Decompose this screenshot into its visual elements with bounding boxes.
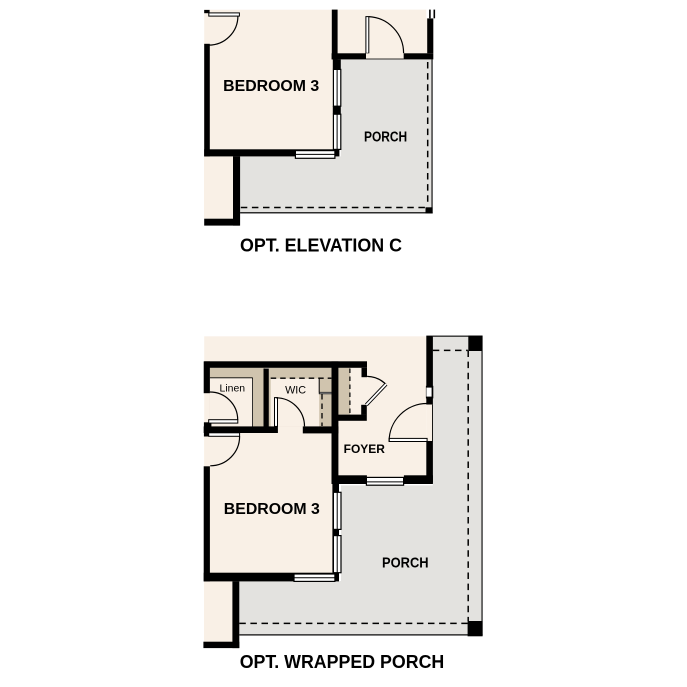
svg-text:PORCH: PORCH	[364, 129, 407, 145]
svg-text:PORCH: PORCH	[382, 554, 429, 571]
svg-text:OPT. ELEVATION C: OPT. ELEVATION C	[240, 236, 402, 256]
svg-text:WIC: WIC	[285, 385, 306, 397]
svg-text:Linen: Linen	[220, 383, 246, 394]
svg-text:FOYER: FOYER	[344, 443, 386, 456]
svg-text:OPT. WRAPPED PORCH: OPT. WRAPPED PORCH	[240, 652, 445, 672]
svg-text:BEDROOM 3: BEDROOM 3	[224, 501, 320, 518]
svg-text:BEDROOM 3: BEDROOM 3	[223, 78, 319, 95]
